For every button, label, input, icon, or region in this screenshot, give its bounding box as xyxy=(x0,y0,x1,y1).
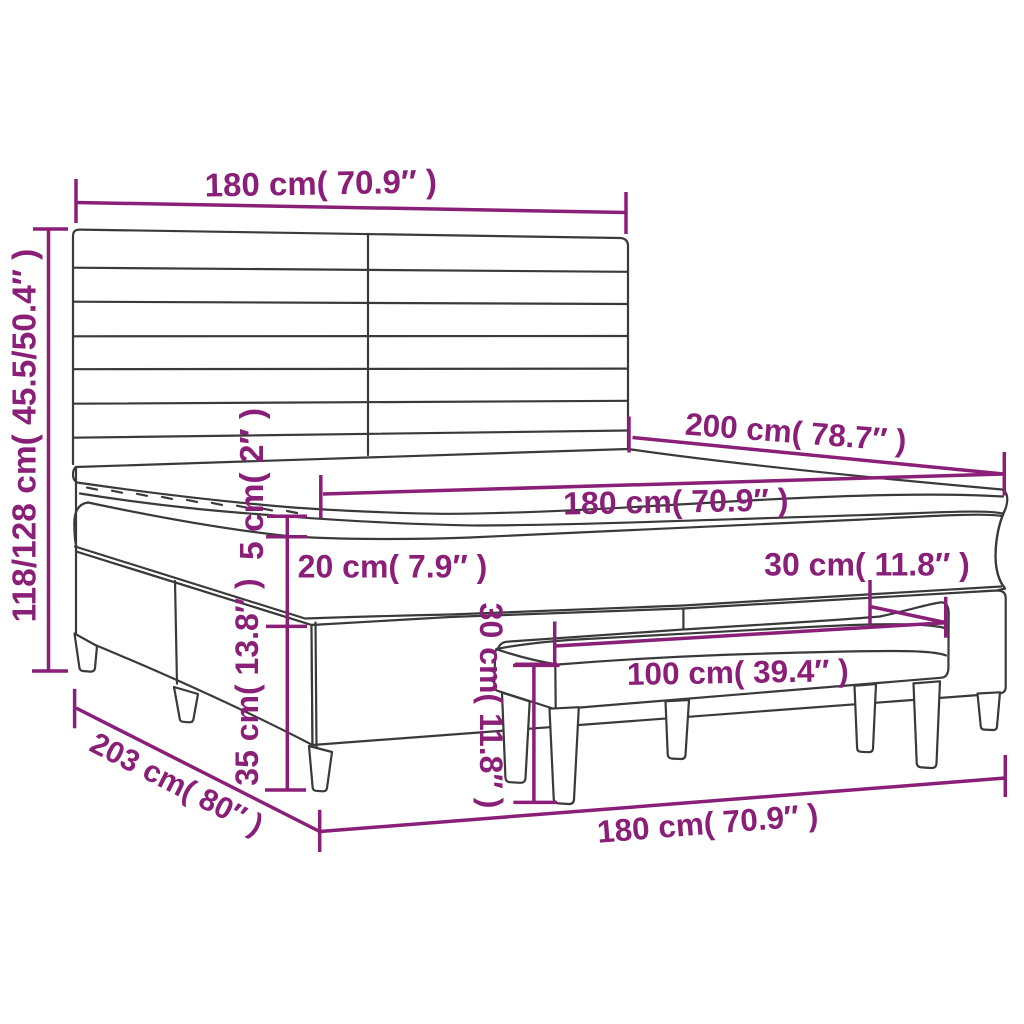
svg-text:30 cm( 11.8″ ): 30 cm( 11.8″ ) xyxy=(473,603,509,809)
svg-text:180 cm( 70.9″ ): 180 cm( 70.9″ ) xyxy=(563,482,789,522)
svg-text:100 cm( 39.4″ ): 100 cm( 39.4″ ) xyxy=(627,652,849,692)
svg-text:5 cm( 2″ ): 5 cm( 2″ ) xyxy=(234,408,271,560)
svg-text:118/128 cm( 45.5/50.4″ ): 118/128 cm( 45.5/50.4″ ) xyxy=(7,249,44,623)
svg-text:30 cm( 11.8″ ): 30 cm( 11.8″ ) xyxy=(764,547,970,583)
svg-text:180 cm( 70.9″ ): 180 cm( 70.9″ ) xyxy=(204,162,437,203)
svg-text:20 cm( 7.9″ ): 20 cm( 7.9″ ) xyxy=(298,549,488,585)
svg-text:35 cm( 13.8″ ): 35 cm( 13.8″ ) xyxy=(229,578,265,785)
